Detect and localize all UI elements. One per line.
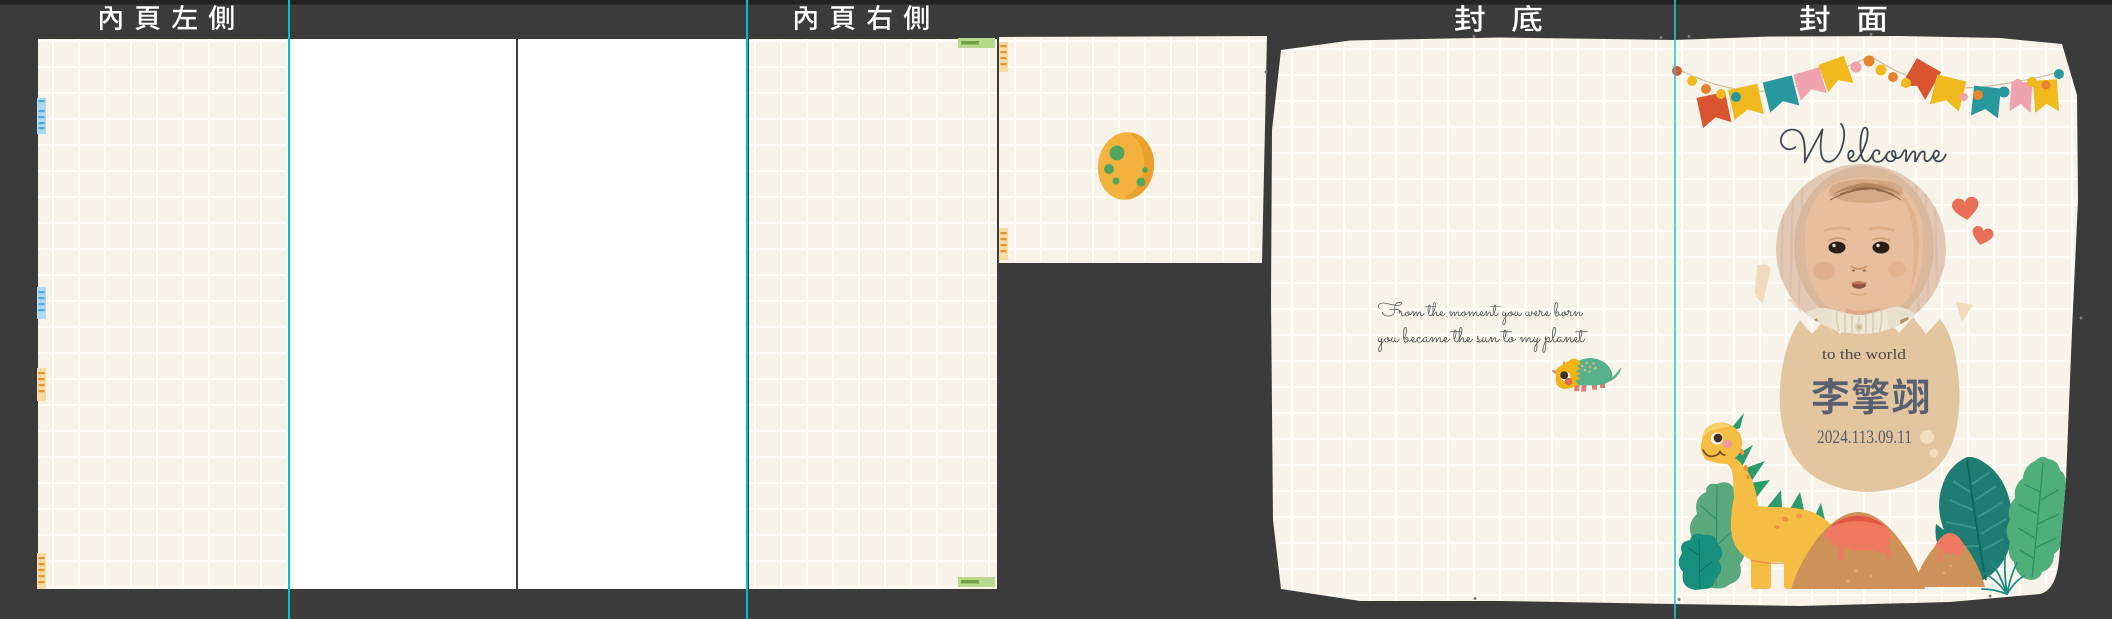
svg-text:2024.113.09.11: 2024.113.09.11 [1817, 427, 1912, 448]
svg-text:to the world: to the world [1822, 347, 1907, 363]
